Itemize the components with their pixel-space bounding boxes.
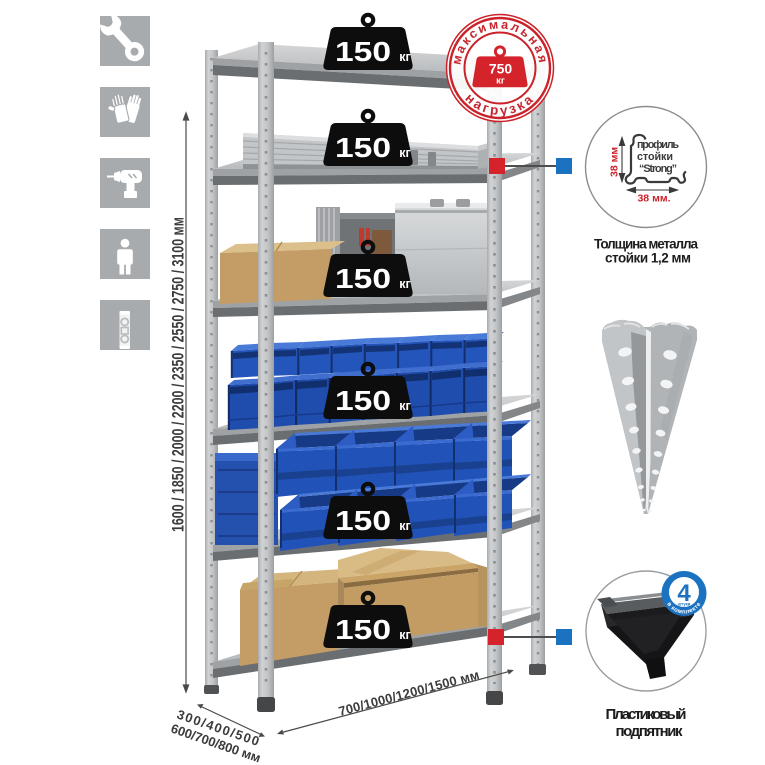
svg-text:150: 150 [335, 385, 391, 416]
svg-text:Толщина металла: Толщина металла [594, 237, 698, 252]
svg-text:150: 150 [335, 36, 391, 67]
svg-text:профиль: профиль [637, 139, 679, 151]
svg-text:штуки: штуки [678, 602, 691, 607]
svg-text:150: 150 [335, 132, 391, 163]
svg-text:750: 750 [489, 61, 513, 77]
svg-text:кг: кг [496, 76, 505, 87]
svg-text:кг: кг [399, 50, 410, 64]
svg-text:стойки: стойки [637, 151, 673, 163]
svg-text:“Strong”: “Strong” [639, 163, 677, 175]
svg-text:подпятник: подпятник [616, 723, 683, 740]
svg-text:1600 / 1850 / 2000 / 2200 / 23: 1600 / 1850 / 2000 / 2200 / 2350 / 2550 … [170, 217, 188, 532]
svg-text:кг: кг [399, 519, 410, 533]
svg-text:150: 150 [335, 263, 391, 294]
svg-text:кг: кг [399, 277, 410, 291]
svg-text:стойки 1,2 мм: стойки 1,2 мм [605, 251, 691, 266]
svg-text:Пластиковый: Пластиковый [606, 706, 687, 723]
svg-text:кг: кг [399, 146, 410, 160]
svg-text:кг: кг [399, 628, 410, 642]
svg-text:38 мм.: 38 мм. [637, 193, 670, 205]
svg-text:кг: кг [399, 399, 410, 413]
svg-text:150: 150 [335, 614, 391, 645]
svg-text:150: 150 [335, 505, 391, 536]
svg-text:38 мм: 38 мм [609, 147, 621, 177]
